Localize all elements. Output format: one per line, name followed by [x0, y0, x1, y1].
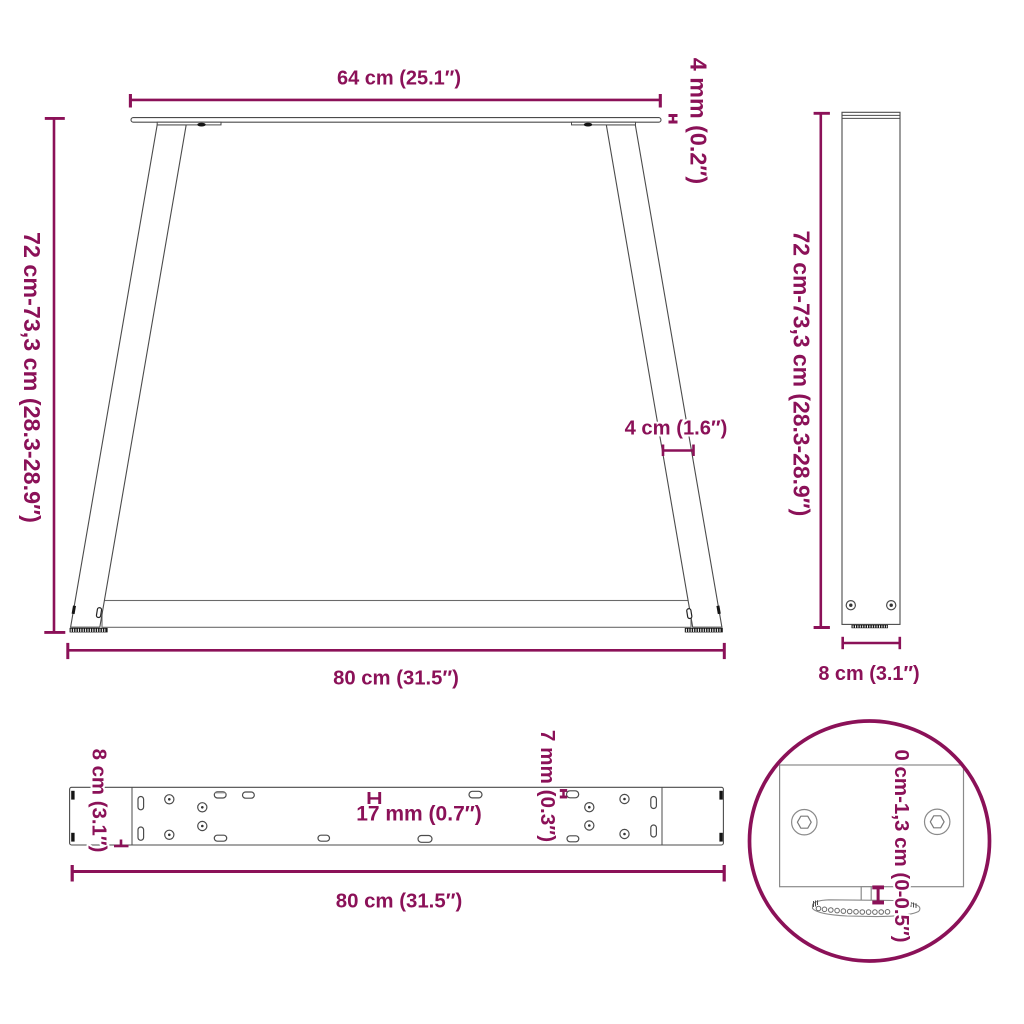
svg-text:72 cm-73,3 cm (28.3-28.9″): 72 cm-73,3 cm (28.3-28.9″) [789, 230, 815, 516]
svg-text:72 cm-73,3 cm (28.3-28.9″): 72 cm-73,3 cm (28.3-28.9″) [19, 232, 45, 523]
svg-text:8 cm (3.1″): 8 cm (3.1″) [88, 749, 110, 853]
svg-text:4 mm (0.2″): 4 mm (0.2″) [686, 58, 712, 184]
svg-text:4 cm (1.6″): 4 cm (1.6″) [625, 418, 728, 440]
svg-text:17 mm (0.7″): 17 mm (0.7″) [356, 803, 482, 826]
svg-text:80 cm (31.5″): 80 cm (31.5″) [336, 891, 463, 913]
svg-text:80 cm (31.5″): 80 cm (31.5″) [333, 668, 459, 690]
svg-text:64 cm (25.1″): 64 cm (25.1″) [337, 68, 461, 90]
svg-text:8 cm (3.1″): 8 cm (3.1″) [818, 663, 919, 685]
svg-text:0 cm-1,3 cm (0-0.5″): 0 cm-1,3 cm (0-0.5″) [890, 749, 913, 942]
svg-text:7 mm (0.3″): 7 mm (0.3″) [536, 730, 559, 842]
